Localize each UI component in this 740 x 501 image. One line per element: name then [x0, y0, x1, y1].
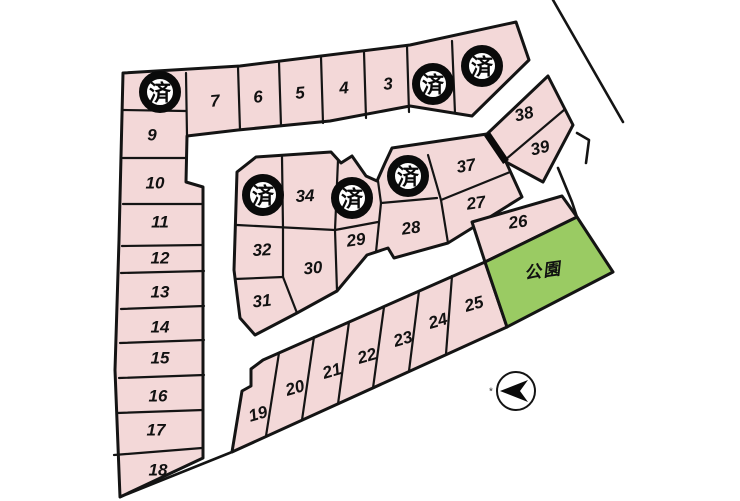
lot-divider	[122, 245, 203, 246]
lot-divider	[186, 73, 187, 136]
lot-label-18: 18	[149, 461, 168, 480]
sold-badge-label: 済	[471, 55, 494, 80]
lot-label-14: 14	[151, 318, 170, 337]
lot-label-32: 32	[252, 240, 272, 260]
subdivision-lot-map: 3456791011121314151617181920212223242526…	[0, 0, 740, 501]
sold-badge-label: 済	[149, 81, 172, 106]
road-boundary-line	[577, 133, 589, 163]
lot-label-28: 28	[399, 217, 422, 239]
sold-badge-label: 済	[341, 187, 364, 212]
lot-label-13: 13	[151, 283, 170, 302]
lot-label-12: 12	[151, 249, 170, 268]
compass-mark: *	[489, 387, 493, 398]
lot-label-30: 30	[303, 258, 324, 279]
lot-label-16: 16	[149, 387, 168, 406]
sold-badge-label: 済	[397, 165, 420, 190]
lot-label-17: 17	[147, 421, 167, 440]
lot-label-29: 29	[344, 229, 367, 251]
lot-label-15: 15	[151, 349, 170, 368]
lot-label-34: 34	[295, 186, 315, 206]
lot-label-26: 26	[506, 211, 529, 233]
sold-badge-label: 済	[252, 184, 275, 209]
lot-label-11: 11	[151, 213, 169, 232]
lot-map-svg: 3456791011121314151617181920212223242526…	[0, 0, 740, 501]
lot-label-10: 10	[146, 174, 165, 193]
lot-label-31: 31	[252, 291, 273, 312]
lot-label-9: 9	[147, 126, 157, 145]
sold-badge-label: 済	[422, 73, 445, 98]
